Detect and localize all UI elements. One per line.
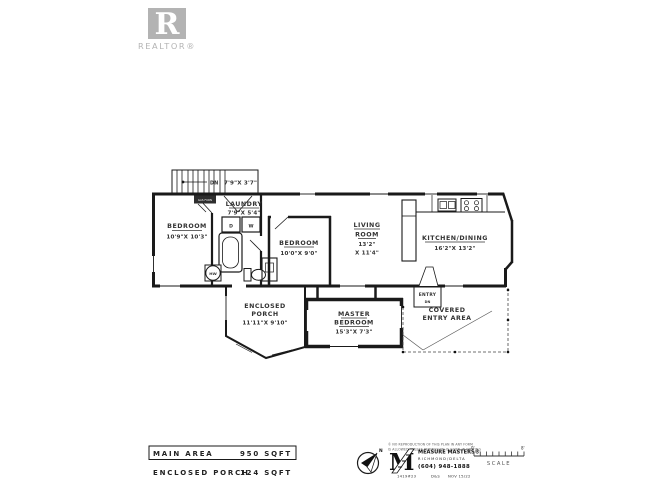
realtor-logo: R REALTOR®: [138, 7, 196, 51]
porch-name-2: PORCH: [251, 311, 278, 318]
company-phone: (604) 948-1888: [418, 464, 470, 470]
kitchen-sink: [438, 199, 456, 211]
measure-masters-logo: M: [389, 449, 414, 476]
living-room-dims-2: X 11'4": [355, 251, 379, 257]
bedroom-left-dims: 10'9"X 10'3": [166, 235, 207, 241]
living-room-dims-1: 13'2": [358, 242, 375, 248]
floor-plan-page: R REALTOR® DN 7'9"X 3'7": [0, 0, 667, 500]
bedroom-left-name: BEDROOM: [167, 223, 207, 230]
realtor-logo-label: REALTOR®: [138, 41, 196, 51]
washer-label: W: [248, 224, 253, 230]
porch-area-label: ENCLOSED PORCH: [153, 469, 250, 477]
realtor-logo-letter: R: [155, 7, 181, 42]
master-dims: 15'3"X 7'3": [335, 330, 372, 336]
dryer-label: D: [229, 224, 233, 230]
laundry-dims: 7'9"X 5'4": [227, 211, 260, 217]
job-number: 1419#23: [397, 475, 417, 479]
main-area-label: MAIN AREA: [153, 450, 214, 458]
bedroom-mid-name: BEDROOM: [279, 240, 319, 247]
laundry-name: LAUNDRY: [226, 201, 263, 208]
job-line: 1419#23 D&S NOV 15/22: [397, 475, 471, 479]
furnace-tag: GAS FURN: [198, 198, 212, 202]
job-code: D&S: [431, 475, 440, 479]
footer-block: © NO REPRODUCTION OF THIS PLAN IN ANY FO…: [358, 443, 525, 479]
hot-water-label: HW: [209, 271, 217, 276]
scale-left-label: 0': [471, 446, 475, 451]
main-area-value: 950 SQFT: [240, 450, 292, 458]
master-name-2: BEDROOM: [334, 320, 374, 327]
disclaimer-line-1: © NO REPRODUCTION OF THIS PLAN IN ANY FO…: [388, 443, 473, 447]
floor-plan-canvas: R REALTOR® DN 7'9"X 3'7": [0, 0, 667, 500]
entry-label: ENTRY: [419, 292, 437, 298]
porch-name-1: ENCLOSED: [244, 303, 285, 310]
job-date: NOV 15/22: [448, 475, 471, 479]
porch-area-value: 124 SQFT: [240, 469, 292, 477]
covered-entry-name-2: ENTRY AREA: [422, 315, 471, 322]
stairs-dims: 7'9"X 3'7": [224, 181, 257, 187]
scale-label: SCALE: [487, 461, 511, 467]
entry-box: ENTRY DN: [414, 287, 441, 307]
area-summary: MAIN AREA 950 SQFT ENCLOSED PORCH 124 SQ…: [149, 446, 296, 477]
entry-dn-label: DN: [425, 300, 431, 304]
kitchen-stove: [461, 199, 482, 213]
north-label: N: [379, 448, 383, 454]
porch-dims: 11'11"X 9'10": [242, 321, 287, 327]
covered-entry-name-1: COVERED: [429, 307, 466, 314]
stairs-dn-label: DN: [210, 181, 219, 187]
scale-right-label: 8': [521, 446, 525, 451]
kitchen-dining-dims: 16'2"X 13'2": [434, 246, 475, 252]
company-region: RICHMOND/DELTA: [418, 457, 466, 461]
laundry-appliances: [222, 217, 260, 232]
bedroom-mid-dims: 10'0"X 9'0": [280, 251, 317, 257]
living-room-name-2: ROOM: [355, 232, 379, 239]
living-room-name-1: LIVING: [353, 222, 380, 229]
master-name-1: MASTER: [338, 311, 370, 318]
company-block: MEASURE MASTERS® RICHMOND/DELTA (604) 94…: [418, 450, 480, 471]
entry-door: [419, 267, 438, 286]
bathtub: [219, 233, 242, 272]
compass-icon: N: [358, 448, 384, 474]
kitchen-dining-name: KITCHEN/DINING: [422, 235, 488, 242]
